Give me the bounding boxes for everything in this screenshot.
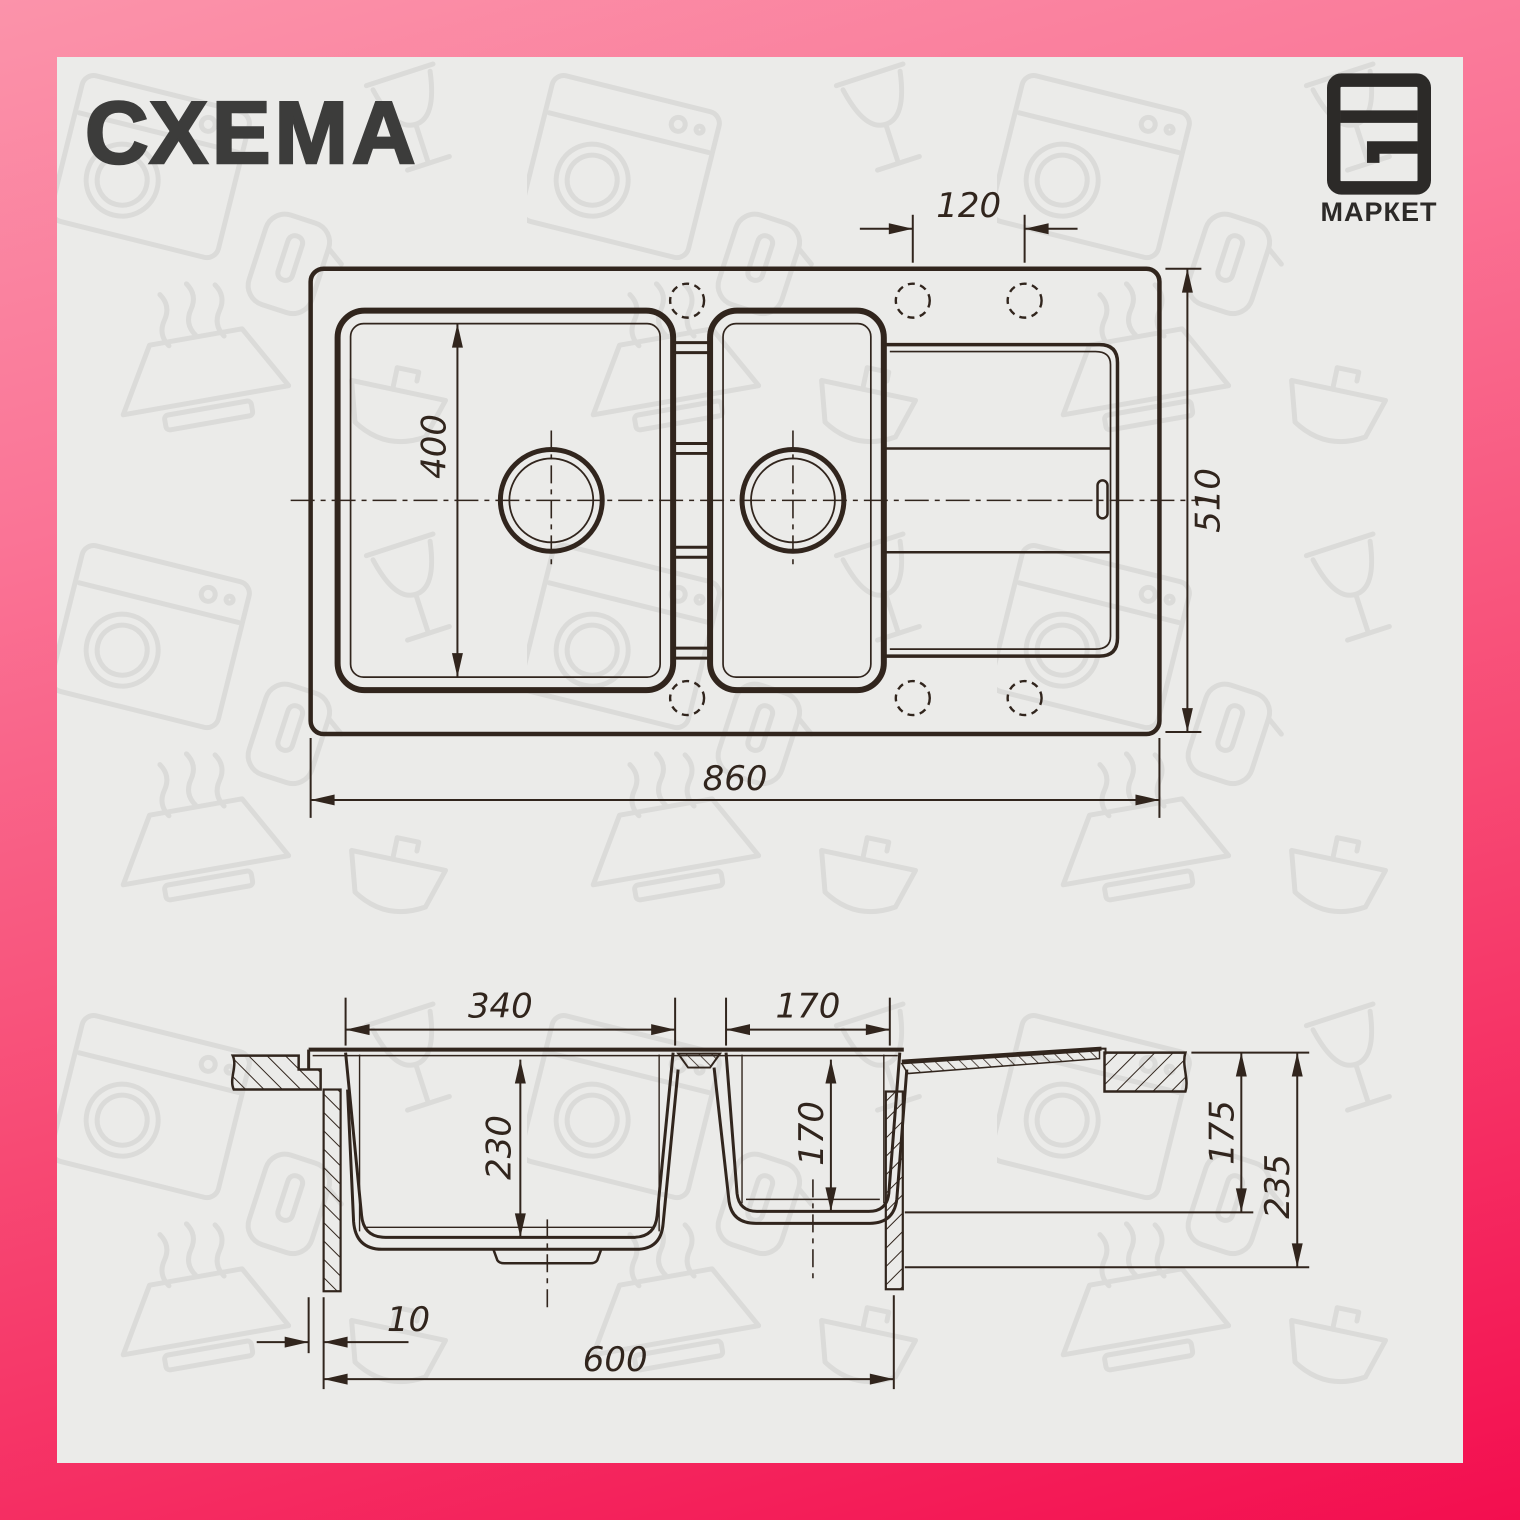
dim-label-under-top-height: 175 [1202,1100,1242,1165]
dim-overall-height: 235 [1258,1053,1302,1268]
dim-small-bowl-width: 170 [726,987,890,1046]
dim-label-small-bowl-depth: 170 [792,1101,832,1166]
pink-frame: СХЕМА МАРКЕТ [0,0,1520,1520]
overflow-slot [1098,480,1108,518]
dim-label-overall-height: 235 [1258,1154,1298,1219]
faucet-holes [670,284,1041,715]
dim-label-edge-offset: 10 [387,1300,430,1340]
dim-main-bowl-depth: 230 [479,1060,525,1238]
dim-label-small-bowl-width: 170 [776,987,841,1027]
countertop-right [1105,1053,1187,1092]
dim-label-cabinet-width: 600 [583,1340,648,1380]
drainboard-section [902,1049,1106,1074]
page-content: СХЕМА МАРКЕТ [57,57,1463,1463]
dim-label-main-bowl-width: 340 [468,987,533,1027]
dim-label-overall-width: 860 [703,759,768,799]
dim-overall-depth: 510 [1165,269,1228,732]
dim-label-overall-depth: 510 [1188,468,1228,533]
section-centerlines [547,1179,813,1307]
dim-overall-width: 860 [311,738,1160,818]
bowl-divider-section [678,1054,720,1068]
sink-flange [309,1050,904,1070]
dim-small-bowl-depth: 170 [792,1060,836,1212]
dim-hole-spacing: 120 [860,186,1078,263]
sink-outline [311,269,1160,734]
dim-main-bowl-width: 340 [346,987,676,1046]
cabinet-wall-left [324,1090,341,1292]
dim-under-top-height: 175 [1202,1053,1246,1213]
dim-label-bowl-length: 400 [414,414,454,479]
dim-label-main-bowl-depth: 230 [479,1115,519,1180]
section-view: 340 170 230 [232,987,1309,1389]
technical-drawing: 120 400 510 [57,57,1463,1463]
dim-label-hole-spacing: 120 [936,186,1001,226]
top-view: 120 400 510 [291,186,1229,818]
